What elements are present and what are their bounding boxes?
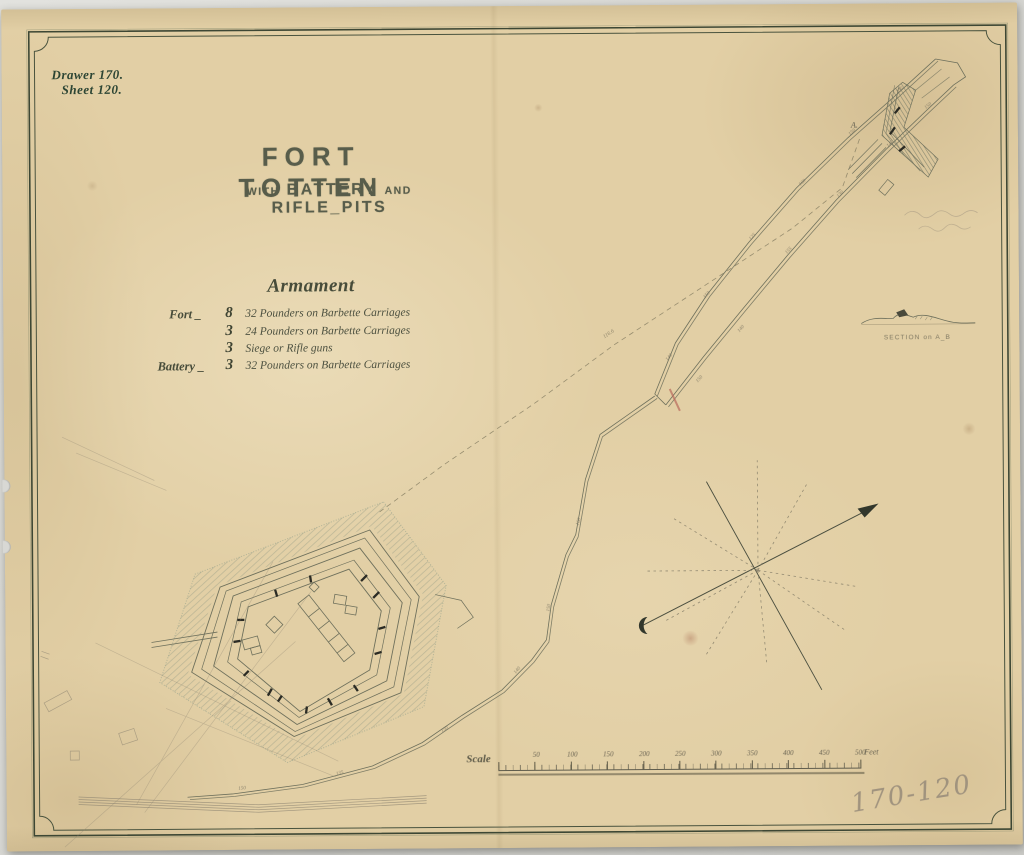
fort-interior-buildings <box>242 582 359 663</box>
fort-plan <box>151 501 475 763</box>
north-arrow-head <box>858 503 879 517</box>
armament-heading: Armament <box>231 275 391 298</box>
distance-mark: 150 <box>546 603 552 612</box>
red-crossing-mark <box>670 389 680 411</box>
paper-stain <box>86 181 98 191</box>
map-sheet: 140 150 125 160 150 135 150 140 155 130 … <box>1 2 1023 851</box>
distance-mark: 140 <box>665 353 674 362</box>
section-profile-fort-silhouette <box>896 309 908 317</box>
outbuildings <box>41 651 138 761</box>
distance-mark: 150 <box>441 726 450 735</box>
paper-stain <box>534 104 543 112</box>
scale-tick-label: 300 <box>705 750 727 758</box>
section-point-a-label: A. <box>850 121 858 130</box>
armament-desc: 24 Pounders on Barbette Carriages <box>245 325 410 338</box>
distance-mark: 160 <box>798 178 807 187</box>
rifle-pit-southeast-side <box>664 85 959 407</box>
rifle-pit-north-tip <box>652 59 967 405</box>
scale-tick-label: 50 <box>525 751 547 759</box>
scale-tick-label: 250 <box>669 750 691 758</box>
armament-qty: 3 <box>225 340 233 357</box>
subtitle-with: WITH <box>247 186 280 198</box>
distance-mark: 150 <box>703 291 712 300</box>
armament-desc: 32 Pounders on Barbette Carriages <box>245 307 410 320</box>
scale-tick-label: 400 <box>777 749 799 757</box>
scale-tick-label: 350 <box>741 749 763 757</box>
compass-main-line <box>641 513 864 627</box>
distance-mark: 135 <box>336 770 345 777</box>
map-subtitle: WITH BATTERY AND RIFLE_PITS <box>186 180 472 218</box>
pencil-scribble-note <box>905 210 978 231</box>
armament-site-battery: Battery _ <box>158 359 205 374</box>
armament-desc: Siege or Rifle guns <box>245 342 332 355</box>
scale-tick-label: 450 <box>813 749 835 757</box>
distance-mark: 150 <box>695 375 704 384</box>
paper-stain <box>962 423 976 435</box>
catalog-block: Drawer 170. Sheet 120. <box>51 67 123 98</box>
armament-site-fort: Fort _ <box>169 307 201 322</box>
armament-qty: 8 <box>225 305 233 322</box>
subtitle-and: AND <box>385 185 412 197</box>
drawer-number: Drawer 170. <box>51 67 123 83</box>
scale-tick-label: 150 <box>597 750 619 758</box>
section-profile-drawing <box>861 309 975 325</box>
compass-rose <box>638 459 880 691</box>
scale-label: Scale <box>466 753 491 765</box>
fort-glacis-hatching <box>159 501 448 763</box>
distance-mark: 155 <box>785 246 794 255</box>
armament-qty: 3 <box>226 357 234 374</box>
roads-and-survey-lines <box>39 435 427 848</box>
scale-tick-label: 100 <box>561 751 583 759</box>
subtitle-riflepits: RIFLE_PITS <box>272 199 388 217</box>
map-drawing: 140 150 125 160 150 135 150 140 155 130 … <box>1 2 1023 851</box>
distance-mark: 140 <box>737 324 746 333</box>
scale-unit-label: Feet <box>864 747 878 756</box>
battery-covered-way <box>848 139 886 177</box>
fort-rampart-4 <box>227 560 391 718</box>
road-lines <box>79 795 427 814</box>
distance-mark: 150 <box>238 786 247 792</box>
distance-mark: 140 <box>513 666 522 675</box>
compass-dashed-rays <box>645 460 857 663</box>
armament-desc: 32 Pounders on Barbette Carriages <box>246 359 411 372</box>
paper-stain <box>681 631 699 646</box>
armament-qty: 3 <box>225 323 233 340</box>
scale-tick-label: 200 <box>633 750 655 758</box>
crescent-moon-symbol <box>639 617 648 634</box>
sheet-number: Sheet 120. <box>62 82 124 97</box>
section-profile-label: SECTION on A_B <box>871 334 963 342</box>
scanner-background: 140 150 125 160 150 135 150 140 155 130 … <box>0 0 1024 855</box>
battery-magazine <box>879 179 894 195</box>
subtitle-battery: BATTERY <box>287 181 378 199</box>
compass-cross-line <box>706 481 821 691</box>
dashed-line-measure-label: 116.6 <box>602 328 616 340</box>
